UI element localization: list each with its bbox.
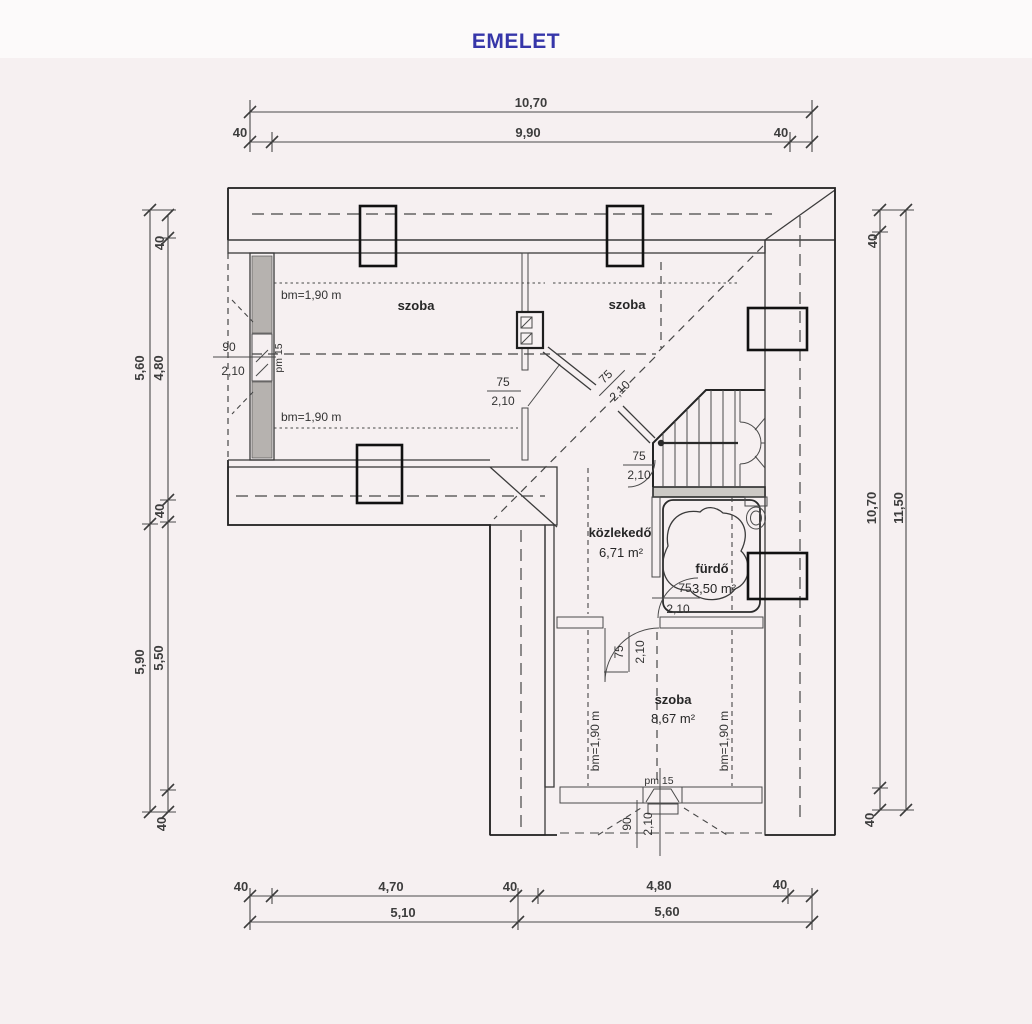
left-window-pm: pm 15 xyxy=(273,343,285,372)
dim-bot-40-mid: 40 xyxy=(503,879,517,894)
walls xyxy=(228,188,835,835)
floor-plan-page: EMELET xyxy=(0,0,1032,1024)
room-area-furdo: 3,50 m² xyxy=(692,581,737,596)
left-window-height: 2,10 xyxy=(221,364,245,378)
dim-right-40-bottom: 40 xyxy=(862,813,877,827)
wall-top-inner-band xyxy=(228,240,765,253)
dim-bot-510: 5,10 xyxy=(390,905,415,920)
bottom-window-height: 2,10 xyxy=(641,812,655,836)
bm-label-top-lower: bm=1,90 m xyxy=(281,410,341,424)
partition-diagonal xyxy=(543,347,655,443)
bottom-window-pm: pm 15 xyxy=(644,775,673,787)
room-area-szoba-bottom: 8,67 m² xyxy=(651,711,696,726)
dim-left-40-bottom: 40 xyxy=(154,817,169,831)
dim-bot-40-right: 40 xyxy=(773,877,787,892)
door5-label: 75 2,10 xyxy=(612,632,647,672)
room-label-kozlekedo: közlekedő xyxy=(589,525,652,540)
door5-height: 2,10 xyxy=(633,640,647,664)
partition-bottom-left xyxy=(557,617,603,628)
floor-plan-canvas: 10,70 40 9,90 40 5,60 5,90 40 4,80 40 5,… xyxy=(0,0,1032,1024)
roof-window-right-1 xyxy=(748,308,807,350)
dim-bot-560: 5,60 xyxy=(654,904,679,919)
door2-width: 75 xyxy=(596,367,616,387)
dim-left-lower-outer: 5,90 xyxy=(132,649,147,674)
door4-height: 2,10 xyxy=(666,602,690,616)
dim-left-upper-outer: 5,60 xyxy=(132,355,147,380)
room-area-kozlekedo: 6,71 m² xyxy=(599,545,644,560)
dim-left-40-top: 40 xyxy=(152,236,167,250)
door1-leaf xyxy=(528,364,560,406)
dim-top-inner: 9,90 xyxy=(515,125,540,140)
partition-bath-left xyxy=(652,497,660,577)
bm-label-top-upper: bm=1,90 m xyxy=(281,288,341,302)
wall-left-inner-band xyxy=(545,525,554,787)
dim-left-lower-inner: 5,50 xyxy=(151,645,166,670)
bottom-window-label: 90 2,10 xyxy=(620,800,655,848)
partition-center-lower xyxy=(522,408,528,460)
room-label-szoba-bottom: szoba xyxy=(655,692,693,707)
valley-line-left xyxy=(494,357,655,519)
dim-right-outer: 11,50 xyxy=(891,492,906,524)
door1-height: 2,10 xyxy=(491,394,515,408)
partition-bottom-right xyxy=(660,617,763,628)
dim-right-inner: 10,70 xyxy=(864,492,879,525)
dim-bot-480: 4,80 xyxy=(646,878,671,893)
dim-left-upper-inner: 4,80 xyxy=(151,355,166,380)
dim-top-40-right: 40 xyxy=(774,125,788,140)
roof-window-mid xyxy=(357,445,402,503)
partition-stair-bath xyxy=(653,487,765,497)
dim-top-40-left: 40 xyxy=(233,125,247,140)
roof-window-top-2 xyxy=(607,206,643,266)
wall-bottom-left xyxy=(490,525,545,835)
dim-bot-470: 4,70 xyxy=(378,879,403,894)
room-label-szoba-top-right: szoba xyxy=(609,297,647,312)
dim-left-40-mid: 40 xyxy=(152,504,167,518)
bm-label-bottom-left: bm=1,90 m xyxy=(588,711,602,771)
roof-window-top-1 xyxy=(360,206,396,266)
door3-width: 75 xyxy=(632,449,646,463)
door1-width: 75 xyxy=(496,375,510,389)
door3-height: 2,10 xyxy=(627,468,651,482)
left-window-width: 90 xyxy=(222,340,236,354)
dim-right-40-top: 40 xyxy=(865,234,880,248)
dimension-lines xyxy=(142,100,914,930)
door5-width: 75 xyxy=(612,645,626,659)
door4-width: 75 xyxy=(678,581,692,595)
roof-window-right-2 xyxy=(748,553,807,599)
dim-bot-40-left: 40 xyxy=(234,879,248,894)
room-label-szoba-top-left: szoba xyxy=(398,298,436,313)
room-label-furdo: fürdő xyxy=(695,561,728,576)
wall-right xyxy=(765,240,835,835)
chimney xyxy=(517,312,543,348)
bottom-window-width: 90 xyxy=(620,817,634,831)
bm-label-bottom-right: bm=1,90 m xyxy=(717,711,731,771)
dim-top-overall: 10,70 xyxy=(515,95,548,110)
